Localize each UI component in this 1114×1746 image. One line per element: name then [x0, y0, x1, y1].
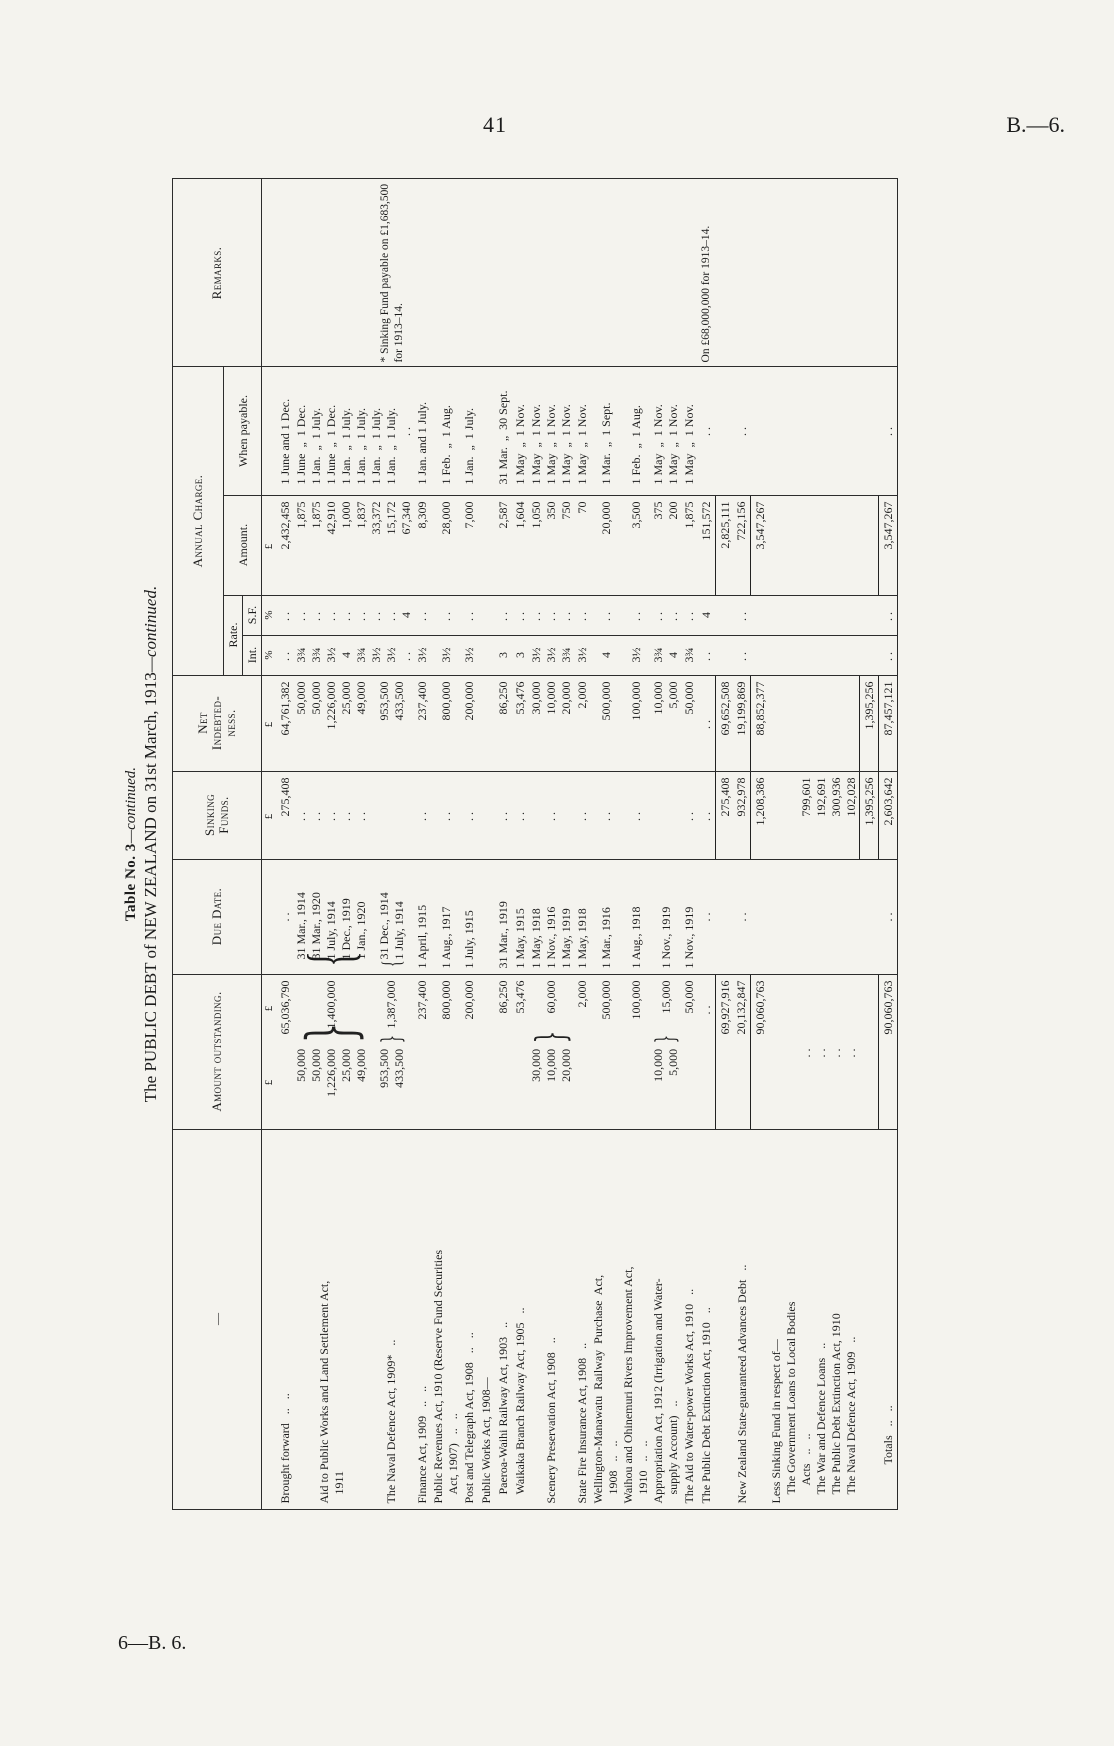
cell-sinking-funds: 275,408 [715, 771, 734, 859]
table-row: State Fire Insurance Act, 1908 ..2,0001 … [574, 179, 591, 1509]
table-row: Public Works Act, 1908— [478, 179, 495, 1509]
amount-group: 100,000 [629, 978, 644, 1126]
table-cell-line: .. [699, 775, 714, 856]
table-cell-line: .. [462, 599, 477, 632]
table-cell-line: .. [439, 599, 454, 632]
cell-act-label: Appropriation Act, 1912 (Irrigation and … [651, 1129, 681, 1509]
table-cell-line: 953,500 [377, 679, 392, 768]
cell-annual-charge-amount [860, 495, 879, 595]
table-cell-line: 25,000 [339, 1046, 354, 1126]
cell-net-indebtedness: 88,852,377 [751, 675, 770, 771]
cell-annual-charge-amount: 3,547,267 [751, 495, 770, 595]
table-cell-line: 2,000 [575, 978, 590, 1040]
col-header-amount-outstanding: Amount outstanding. [173, 974, 262, 1129]
table-cell-line: 31 Mar., 1919 [496, 863, 511, 969]
table-cell-line [881, 183, 896, 362]
cell-annual-charge-amount: 1,8751,87542,9101,0001,837 [294, 495, 369, 595]
table-cell-line: 2,432,458 [278, 499, 293, 592]
cell-due-date: {31 Mar., 191431 Mar., 19201 July, 19141… [294, 859, 369, 974]
cell-act-label: Wellington-Manawatu Railway Purchase Act… [591, 1129, 621, 1509]
table-cell-line: 1 Nov., 1916 [544, 863, 559, 969]
cell-sinking-funds: .. [698, 771, 715, 859]
cell-rate-sf [769, 595, 860, 635]
table-cell-line: 3,547,267 [881, 499, 896, 592]
cell-when-payable: 1 Mar. „ 1 Sept. [591, 367, 621, 495]
amount-group: 500,000 [599, 978, 614, 1126]
table-cell-line: 102,028 [844, 775, 859, 856]
table-cell-line [479, 370, 494, 489]
cell-rate-sf: % [262, 595, 278, 635]
due-date-lines: 31 Mar., 191431 Mar., 19201 July, 19141 … [294, 892, 369, 959]
cell-remarks [591, 179, 621, 367]
amount-total: 50,000 [682, 978, 697, 1040]
table-cell-line [807, 370, 822, 489]
cell-sinking-funds: .. [512, 771, 529, 859]
col-header-rate: Rate. [224, 595, 243, 675]
table-cell-line: 275,408 [278, 775, 293, 856]
cell-net-indebtedness [769, 675, 860, 771]
table-cell-line: Act, 1907) .. .. [446, 1133, 461, 1504]
cell-rate-int [769, 635, 860, 675]
amount-group: 50,00050,0001,226,00025,00049,000}1,400,… [294, 978, 369, 1126]
table-cell-line: .. [462, 775, 477, 856]
table-cell-line: 2,825,111 [718, 499, 733, 592]
cell-amount-outstanding [478, 974, 495, 1129]
cell-annual-charge-amount: 3,547,267 [879, 495, 898, 595]
table-cell-line: .. [629, 599, 644, 632]
cell-sinking-funds: £ [262, 771, 278, 859]
table-cell-line: Post and Telegraph Act, 1908 .. .. [462, 1133, 477, 1504]
table-cell-line: 1 Feb. „ 1 Aug. [439, 370, 454, 489]
amount-itemized: 953,500433,500 [377, 1046, 407, 1126]
table-cell-line: 433,500 [392, 1046, 407, 1126]
table-cell-line: 42,910 [324, 499, 339, 592]
table-cell-line: 1910 .. .. [636, 1133, 651, 1504]
table-cell-line: 50,000 [682, 978, 697, 1040]
table-cell-line: 49,000 [354, 1046, 369, 1126]
table-cell-line [479, 679, 494, 768]
table-cell-line: 7,000 [462, 499, 477, 592]
table-cell-line: .. [699, 370, 714, 489]
cell-act-label: Aid to Public Works and Land Settlement … [294, 1129, 369, 1509]
cell-rate-sf: .. [621, 595, 651, 635]
cell-rate-int: % [262, 635, 278, 675]
table-cell-line [415, 183, 430, 362]
cell-rate-int: 3¾ [681, 635, 698, 675]
table-cell-line: 3,500 [629, 499, 644, 592]
cell-rate-int: 3 [512, 635, 529, 675]
table-cell-line: The Public Debt Extinction Act, 1910 [829, 1133, 844, 1504]
table-cell-line: 1,226,000 [324, 679, 339, 768]
cell-sinking-funds: .. [414, 771, 431, 859]
amount-total: 60,000 [544, 978, 559, 1035]
cell-due-date [751, 859, 770, 974]
table-subject-continued: —continued. [141, 586, 160, 672]
table-cell-line: .. [278, 863, 293, 969]
cell-act-label [262, 1129, 278, 1509]
table-cell-line [479, 183, 494, 362]
cell-rate-int: 3½ [621, 635, 651, 675]
table-row: Post and Telegraph Act, 1908 .. ..200,00… [461, 179, 478, 1509]
cell-act-label: The Aid to Water-power Works Act, 1910 .… [681, 1129, 698, 1509]
public-debt-table: — Amount outstanding. Due Date. Sinking … [172, 178, 898, 1509]
table-cell-line: 20,000 [599, 499, 614, 592]
table-title-line2: The PUBLIC DEBT of NEW ZEALAND on 31st M… [140, 168, 162, 1520]
table-cell-line [717, 863, 732, 969]
cell-sinking-funds: .. [495, 771, 512, 859]
amount-group: 53,476 [513, 978, 528, 1126]
amount-group: 200,000 [462, 978, 477, 1126]
cell-remarks [294, 179, 369, 367]
table-cell-line: 10,000 [651, 1046, 666, 1126]
table-cell-line: * Sinking Fund payable on £1,683,500 for… [378, 183, 406, 362]
cell-when-payable [478, 367, 495, 495]
table-cell-line [496, 183, 511, 362]
table-cell-line: 3½ [324, 639, 339, 672]
table-cell-line: Finance Act, 1909 .. .. [415, 1133, 430, 1504]
cell-remarks [751, 179, 770, 367]
table-cell-line: 1 May, 1918 [529, 863, 544, 969]
cell-remarks [879, 179, 898, 367]
table-cell-line: .. [881, 639, 896, 672]
table-cell-line: £ [263, 679, 276, 768]
table-cell-line: .. [699, 863, 714, 969]
table-cell-line [479, 599, 494, 632]
col-header-sinking-funds: Sinking Funds. [173, 771, 262, 859]
amount-total: 90,060,763 [881, 978, 896, 1040]
table-cell-line: .. [354, 599, 369, 632]
table-row: The Naval Defence Act, 1909* ..953,50043… [369, 179, 414, 1509]
table-cell-line: 1 Jan. „ 1 July. [354, 370, 369, 489]
table-cell-line: New Zealand State-guaranteed Advances De… [735, 1133, 750, 1504]
grouping-brace: { [379, 962, 405, 967]
cell-remarks [414, 179, 431, 367]
grouping-brace: } [379, 1038, 405, 1044]
amount-total: 90,060,763 [753, 978, 768, 1040]
table-cell-line [479, 775, 494, 856]
table-cell-line: 3½ [629, 639, 644, 672]
table-cell-line: 1 June „ 1 Dec. [324, 370, 339, 489]
table-cell-line: 31 Mar. „ 30 Sept. [496, 370, 511, 489]
table-cell-line: .. [496, 599, 511, 632]
cell-due-date [478, 859, 495, 974]
amount-total: 1,387,000 [384, 978, 399, 1035]
table-row: Finance Act, 1909 .. ..237,4001 April, 1… [414, 179, 431, 1509]
col-header-stub: — [173, 1129, 262, 1509]
cell-amount-outstanding [860, 974, 879, 1129]
table-row: 1,395,2561,395,256 [860, 179, 879, 1509]
table-cell-line: 67,340 [399, 499, 414, 592]
table-cell-line: 1 Mar., 1916 [599, 863, 614, 969]
table-cell-line: 100,000 [629, 679, 644, 768]
table-cell-line [735, 183, 750, 362]
table-cell-line: .. [278, 639, 293, 672]
table-cell-line [862, 1133, 877, 1504]
table-cell-line [862, 183, 877, 362]
table-subject: The PUBLIC DEBT of NEW ZEALAND on 31st M… [141, 672, 160, 1102]
cell-rate-int [715, 635, 734, 675]
cell-remarks [262, 179, 278, 367]
table-cell-line: 1 May, 1919 [559, 863, 574, 969]
table-cell-line: 3,547,267 [753, 499, 768, 592]
cell-rate-int: 3¾3¾3½43¾ [294, 635, 369, 675]
cell-act-label: Post and Telegraph Act, 1908 .. .. [461, 1129, 478, 1509]
table-cell-line [753, 1133, 768, 1504]
cell-sinking-funds [369, 771, 414, 859]
cell-rate-sf: .. [431, 595, 461, 635]
amount-group: 90,060,763 [753, 978, 768, 1126]
table-cell-line: Less Sinking Fund in respect of— [769, 1133, 784, 1504]
table-row: Scenery Preservation Act, 1908 ..30,0001… [529, 179, 574, 1509]
table-cell-line: 1 Jan. „ 1 July. [462, 370, 477, 489]
table-cell-line: Public Works Act, 1908— [479, 1133, 494, 1504]
table-cell-line: .. [529, 599, 544, 632]
cell-remarks [478, 179, 495, 367]
amount-group: .. [699, 978, 714, 1126]
table-cell-line: 1 Jan. „ 1 July. [369, 370, 384, 489]
cell-annual-charge-amount [769, 495, 860, 595]
table-continued: —continued. [123, 767, 139, 843]
cell-rate-int: 3½3½.. [369, 635, 414, 675]
cell-amount-outstanding: 100,000 [621, 974, 651, 1129]
table-cell-line: .. [415, 775, 430, 856]
table-row: Waikaka Branch Railway Act, 1905 ..53,47… [512, 179, 529, 1509]
cell-sinking-funds: 1,395,256 [860, 771, 879, 859]
table-cell-line: 1911 [332, 1133, 347, 1504]
table-cell-line: 3½ [369, 639, 384, 672]
cell-rate-sf [751, 595, 770, 635]
table-cell-line: 3½ [462, 639, 477, 672]
table-cell-line: 3½ [529, 639, 544, 672]
cell-act-label: The Public Debt Extinction Act, 1910 .. [698, 1129, 715, 1509]
cell-rate-int: .. [879, 635, 898, 675]
table-row: Public Revenues Act, 1910 (Reserve Fund … [431, 179, 461, 1509]
table-title: Table No. 3—continued. The PUBLIC DEBT o… [120, 168, 172, 1520]
cell-when-payable: 1 May „ 1 Nov. [574, 367, 591, 495]
table-cell-line [682, 183, 697, 362]
cell-annual-charge-amount: 8,309 [414, 495, 431, 595]
cell-rate-sf: .. [512, 595, 529, 635]
document-reference: B.—6. [940, 112, 1065, 138]
cell-rate-int: .. [277, 635, 294, 675]
cell-rate-sf: .. [461, 595, 478, 635]
cell-amount-outstanding: 237,400 [414, 974, 431, 1129]
table-cell-line: 1,604 [513, 499, 528, 592]
table-cell-line: 1 Jan. „ 1 July. [309, 370, 324, 489]
cell-due-date: 1 May, 19181 Nov., 19161 May, 1919 [529, 859, 574, 974]
amount-group: 10,0005,000}15,000 [651, 978, 681, 1126]
table-cell-line: 932,978 [734, 775, 749, 856]
cell-when-payable: 1 May „ 1 Nov.1 May „ 1 Nov.1 May „ 1 No… [529, 367, 574, 495]
table-cell-line [263, 183, 276, 362]
table-cell-line [629, 183, 644, 362]
cell-remarks [431, 179, 461, 367]
grouping-brace: } [532, 1038, 571, 1044]
col-header-rate-sf: S.F. [243, 595, 262, 635]
table-cell-line: .. [735, 639, 750, 672]
cell-net-indebtedness: .. [698, 675, 715, 771]
table-cell-line: 49,000 [354, 679, 369, 768]
table-cell-line [575, 183, 590, 362]
table-cell-line: 3 [513, 639, 528, 672]
table-cell-line: On £68,000,000 for 1913–14. [699, 183, 714, 362]
footer-reference: 6—B. 6. [118, 1632, 186, 1655]
table-cell-line: 1 Aug., 1918 [629, 863, 644, 969]
amount-group: 237,400 [415, 978, 430, 1126]
cell-rate-int [478, 635, 495, 675]
table-cell-line: 1,875 [294, 499, 309, 592]
cell-amount-outstanding: 50,000 [681, 974, 698, 1129]
cell-net-indebtedness: 53,476 [512, 675, 529, 771]
table-cell-line: 1 May „ 1 Nov. [651, 370, 666, 489]
table-cell-line [769, 978, 784, 1126]
cell-sinking-funds: .. [621, 771, 651, 859]
table-cell-line: 100,000 [629, 978, 644, 1040]
table-cell-line: supply Account) .. [666, 1133, 681, 1504]
table-cell-line: 64,761,382 [278, 679, 293, 768]
cell-rate-sf: ....4 [369, 595, 414, 635]
table-cell-line: 10,000 [544, 679, 559, 768]
table-row: Brought forward .. ..65,036,790..275,408… [277, 179, 294, 1509]
table-cell-line: 1,875 [309, 499, 324, 592]
table-header: — Amount outstanding. Due Date. Sinking … [173, 179, 262, 1509]
table-cell-line: 1 May „ 1 Nov. [559, 370, 574, 489]
table-cell-line: 1,208,386 [753, 775, 768, 856]
amount-group: 69,927,916 [718, 978, 733, 1126]
cell-act-label [715, 1129, 734, 1509]
cell-sinking-funds: .. [574, 771, 591, 859]
table-cell-line: Waikaka Branch Railway Act, 1905 .. [513, 1133, 528, 1504]
cell-sinking-funds: .......... [294, 771, 369, 859]
cell-rate-sf: .... [651, 595, 681, 635]
cell-sinking-funds: 1,208,386 [751, 771, 770, 859]
cell-act-label: State Fire Insurance Act, 1908 .. [574, 1129, 591, 1509]
cell-annual-charge-amount: 2,587 [495, 495, 512, 595]
cell-net-indebtedness: 87,457,121 [879, 675, 898, 771]
amount-itemized: 10,0005,000 [651, 1046, 681, 1126]
cell-due-date [860, 859, 879, 974]
table-cell-line: Aid to Public Works and Land Settlement … [317, 1133, 332, 1504]
table-cell-line: .. [735, 370, 750, 489]
table-cell-line: 1 July, 1914 [324, 892, 339, 959]
cell-amount-outstanding: 20,132,847 [734, 974, 751, 1129]
amount-total: 2,000 [575, 978, 590, 1040]
table-cell-line: 350 [544, 499, 559, 592]
col-header-rate-int: Int. [243, 635, 262, 675]
amount-group: 65,036,790 [278, 978, 293, 1126]
amount-itemized: 50,00050,0001,226,00025,00049,000 [294, 1046, 369, 1126]
table-cell-line: 1908 .. .. [606, 1133, 621, 1504]
table-cell-line: 275,408 [718, 775, 733, 856]
table-cell-line: 1 Nov., 1919 [682, 863, 697, 969]
table-cell-line: .. [415, 599, 430, 632]
table-cell-line: .. [599, 599, 614, 632]
cell-act-label: Totals .. .. [879, 1129, 898, 1509]
cell-annual-charge-amount: £ [262, 495, 278, 595]
cell-annual-charge-amount: 722,156 [734, 495, 751, 595]
cell-rate-int: 3 [495, 635, 512, 675]
table-cell-line: .. [699, 639, 714, 672]
cell-amount-outstanding: 2,000 [574, 974, 591, 1129]
cell-amount-outstanding: 50,00050,0001,226,00025,00049,000}1,400,… [294, 974, 369, 1129]
table-cell-line: 50,000 [682, 679, 697, 768]
cell-remarks [681, 179, 698, 367]
cell-sinking-funds: .. [431, 771, 461, 859]
cell-net-indebtedness: 1,395,256 [860, 675, 879, 771]
table-cell-line [659, 775, 674, 856]
cell-amount-outstanding: 86,250 [495, 974, 512, 1129]
grouping-brace: } [299, 1038, 364, 1044]
table-cell-line: 19,199,869 [734, 679, 749, 768]
cell-net-indebtedness: 200,000 [461, 675, 478, 771]
table-cell-line: 1,000 [339, 499, 354, 592]
table-cell-line: .. [881, 863, 896, 969]
table-cell-line: Waihou and Ohinemuri Rivers Improvement … [621, 1133, 636, 1504]
cell-annual-charge-amount: 3,500 [621, 495, 651, 595]
table-cell-line: 1 June and 1 Dec. [278, 370, 293, 489]
table-cell-line: .. [324, 775, 339, 856]
table-cell-line: 4 [699, 599, 714, 632]
table-cell-line: 86,250 [496, 679, 511, 768]
table-cell-line [278, 183, 293, 362]
cell-rate-int: .. [698, 635, 715, 675]
table-cell-line [263, 1133, 276, 1504]
cell-sinking-funds: .. [591, 771, 621, 859]
cell-due-date: 31 Mar., 1919 [495, 859, 512, 974]
table-cell-line: 69,927,916 [718, 978, 733, 1040]
table-cell-line: .. [294, 775, 309, 856]
table-cell-line: 1,387,000 [384, 978, 399, 1035]
cell-rate-sf [478, 595, 495, 635]
table-row: ££ ££%%£ [262, 179, 278, 1509]
table-cell-line: 90,060,763 [881, 978, 896, 1040]
table-cell-line: 3½ [544, 639, 559, 672]
cell-due-date: 1 July, 1915 [461, 859, 478, 974]
table-cell-line: .. [829, 978, 844, 1126]
table-cell-line [807, 183, 822, 362]
table-cell-line: .. [666, 599, 681, 632]
table-cell-line [784, 978, 799, 1126]
table-cell-line: Brought forward .. .. [278, 1133, 293, 1504]
table-cell-line: .. [278, 599, 293, 632]
table-cell-line [263, 370, 276, 489]
cell-remarks [715, 179, 734, 367]
cell-rate-sf [860, 595, 879, 635]
table-cell-line: 4 [599, 639, 614, 672]
table-cell-line: The Naval Defence Act, 1909* .. [384, 1133, 399, 1504]
cell-act-label: Waikaka Branch Railway Act, 1905 .. [512, 1129, 529, 1509]
cell-annual-charge-amount: 20,000 [591, 495, 621, 595]
table-cell-line [324, 183, 339, 362]
cell-annual-charge-amount: 1,604 [512, 495, 529, 595]
cell-rate-sf: .. [734, 595, 751, 635]
amount-total: 800,000 [439, 978, 454, 1040]
table-cell-line: .. [881, 370, 896, 489]
table-cell-line [263, 863, 276, 969]
cell-due-date [769, 859, 860, 974]
table-cell-line [479, 978, 494, 1126]
table-cell-line: 87,457,121 [881, 679, 896, 768]
table-cell-line: 433,500 [392, 679, 407, 768]
cell-when-payable: 1 May „ 1 Nov. [512, 367, 529, 495]
table-cell-line: 33,372 [369, 499, 384, 592]
table-cell-line: 3¾ [354, 639, 369, 672]
table-cell-line: 88,852,377 [753, 679, 768, 768]
table-cell-line: .. [399, 639, 414, 672]
table-cell-line: 1,226,000 [324, 1046, 339, 1126]
table-cell-line: 3¾ [682, 639, 697, 672]
table-cell-line [753, 863, 768, 969]
